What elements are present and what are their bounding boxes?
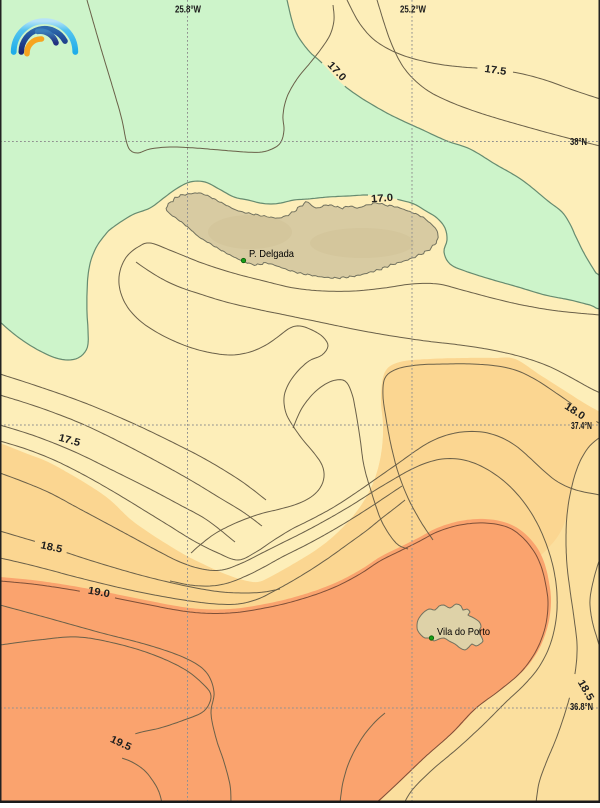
svg-text:25.8°W: 25.8°W — [175, 5, 201, 16]
svg-text:36.8°N: 36.8°N — [570, 702, 593, 713]
svg-text:P. Delgada: P. Delgada — [249, 248, 294, 260]
svg-text:38°N: 38°N — [570, 137, 587, 148]
svg-text:25.2°W: 25.2°W — [400, 5, 426, 16]
svg-text:17.0: 17.0 — [371, 192, 394, 206]
svg-text:37.4°N: 37.4°N — [571, 421, 592, 432]
svg-text:Vila do Porto: Vila do Porto — [437, 626, 490, 638]
